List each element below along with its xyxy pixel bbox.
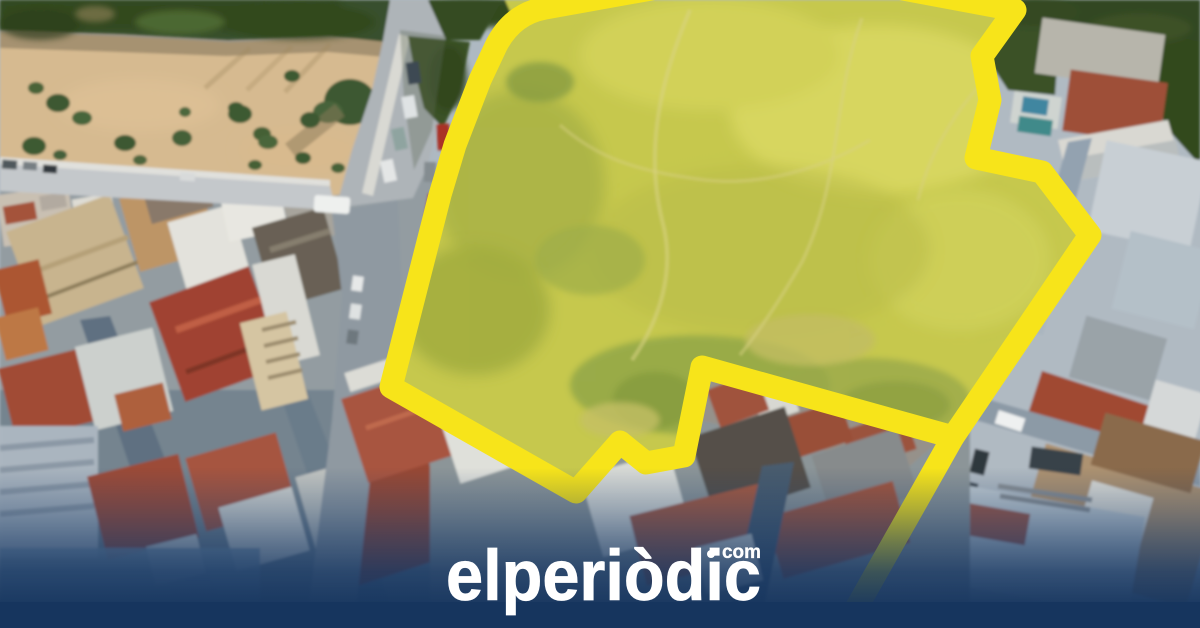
svg-text:com: com [722, 542, 761, 563]
svg-text:elperiòdic: elperiòdic [446, 537, 761, 616]
